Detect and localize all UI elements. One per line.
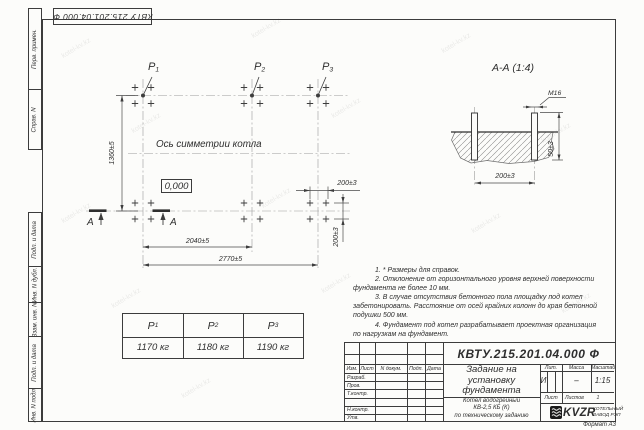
- notes-block: 1. * Размеры для справок. 2. Отклонение …: [353, 266, 607, 339]
- header-sub: 1: [155, 322, 159, 329]
- section-letter-left: А: [87, 217, 94, 228]
- bolt-thread-label: М16: [548, 90, 561, 97]
- kvzr-logo-icon: [550, 406, 562, 419]
- title-block: КВТУ.215.201.04.000 Ф Изм. Лист N докум.…: [344, 342, 616, 422]
- level-mark-value: 0,000: [165, 181, 189, 192]
- table-value-p2: 1180 кг: [183, 337, 243, 357]
- kvzr-logo-text: KVZR: [563, 404, 592, 421]
- tb-col-data: Дата: [425, 366, 443, 372]
- load-label-p2: P2: [254, 61, 265, 73]
- load-label-p1: P1: [148, 61, 159, 73]
- logo-caption-line: ЗАВОД РЭП: [593, 413, 623, 419]
- table-header-p3: P3: [243, 314, 303, 337]
- concrete-pad: [452, 132, 555, 164]
- header-sub: 2: [215, 322, 219, 329]
- product-line: Котел водогрейный: [463, 398, 520, 405]
- note-line: 2. Отклонение от горизонтального уровня …: [353, 275, 607, 284]
- header-base: P: [268, 320, 275, 332]
- tb-sheets-label: Листов: [565, 395, 584, 401]
- tb-line: [345, 398, 443, 399]
- dim-200-horizontal: 200±3: [329, 180, 365, 187]
- table-value-p3: 1190 кг: [243, 337, 303, 357]
- header-base: P: [148, 320, 155, 332]
- tb-row-nkontr: Н.контр.: [347, 407, 369, 413]
- section-cut-marks: [89, 211, 170, 225]
- format-note: Формат А3: [560, 422, 616, 428]
- tb-sheet-label: Лист: [540, 395, 562, 401]
- tb-mass-value: –: [562, 376, 591, 385]
- tb-line: [540, 392, 614, 393]
- load-label-p3: P3: [322, 61, 333, 73]
- tb-mass-label: Масса: [562, 365, 591, 371]
- tb-doc-title: Задание на установку фундамента: [443, 365, 540, 397]
- dim-2770: 2770±5: [210, 256, 251, 263]
- load-label-sub: 2: [261, 66, 265, 73]
- load-label-sub: 3: [329, 66, 333, 73]
- tb-lit-value: И: [540, 376, 547, 385]
- doc-title-line: фундамента: [462, 386, 520, 397]
- tb-row-prov: Пров.: [347, 383, 361, 389]
- tb-row-utv: Утв.: [347, 415, 359, 421]
- tb-col-podp: Подп.: [407, 366, 425, 372]
- dim-200-section: 200±3: [487, 173, 523, 180]
- tb-line: [547, 371, 548, 393]
- header-sub: 3: [275, 322, 279, 329]
- tb-col-izm: Изм.: [345, 366, 359, 372]
- tb-col-doc: N докум.: [375, 366, 407, 372]
- dim-2040: 2040±5: [177, 238, 218, 245]
- table-header-p1: P1: [123, 314, 183, 337]
- dim-50: 50±3: [547, 134, 557, 164]
- load-label-sub: 1: [155, 66, 159, 73]
- note-line: 1. * Размеры для справок.: [353, 266, 607, 275]
- tb-scale-value: 1:15: [591, 376, 614, 385]
- loads-table: P1 P2 P3 1170 кг 1180 кг 1190 кг: [122, 313, 304, 359]
- axis-lines: [86, 79, 535, 268]
- symmetry-axis-caption: Ось симметрии котла: [156, 139, 262, 150]
- tb-line: [345, 354, 443, 355]
- tb-product: Котел водогрейный КВ-2,5 КБ (К) по техни…: [443, 397, 540, 421]
- product-line: по техническому заданию: [454, 413, 528, 420]
- tb-scale-label: Масштаб: [591, 365, 614, 371]
- note-line: фундамента не более 10 мм.: [353, 284, 607, 293]
- product-line: КВ-2,5 КБ (К): [473, 405, 509, 412]
- logo-caption-line: КОТЕЛЬНЫЙ: [593, 407, 623, 413]
- dimension-arrows: [120, 96, 344, 267]
- drawing-sheet: kotel-kv.kz kotel-kv.kz kotel-kv.kz kote…: [0, 0, 644, 430]
- tb-row-razrab: Разраб.: [347, 375, 366, 381]
- load-point-leaders: [141, 77, 326, 97]
- note-line: забетонировать. Расстояние от осей крайн…: [353, 302, 607, 311]
- tb-line: [555, 371, 556, 393]
- section-title: А-А (1:4): [478, 62, 548, 74]
- table-header-p2: P2: [183, 314, 243, 337]
- tb-line: [345, 414, 443, 415]
- note-line: 3. В случае отсутствия бетонного пола пл…: [353, 293, 607, 302]
- section-letter-right: А: [170, 217, 177, 228]
- note-line: по нагрузкам на фундамент.: [353, 330, 607, 339]
- tb-designation: КВТУ.215.201.04.000 Ф: [443, 343, 614, 364]
- kvzr-logo-caption: КОТЕЛЬНЫЙ ЗАВОД РЭП: [593, 407, 623, 419]
- note-line: подушки 500 мм.: [353, 311, 607, 320]
- anchor-bolt-left: [472, 113, 478, 160]
- tb-row-tkontr: Т.контр.: [347, 391, 368, 397]
- anchor-bolt-right: [532, 113, 538, 160]
- tb-sheets-value: 1: [591, 395, 605, 401]
- table-value-p1: 1170 кг: [123, 337, 183, 357]
- dimension-lines: [116, 96, 360, 266]
- level-mark-box: 0,000: [161, 179, 192, 193]
- tb-lit-label: Лит.: [540, 365, 562, 371]
- header-base: P: [208, 320, 215, 332]
- dim-200-vertical: 200±3: [332, 222, 342, 252]
- tb-col-list: Лист: [359, 366, 375, 372]
- note-line: 4. Фундамент под котел разрабатывает про…: [353, 321, 607, 330]
- dim-1360: 1360±5: [108, 138, 118, 168]
